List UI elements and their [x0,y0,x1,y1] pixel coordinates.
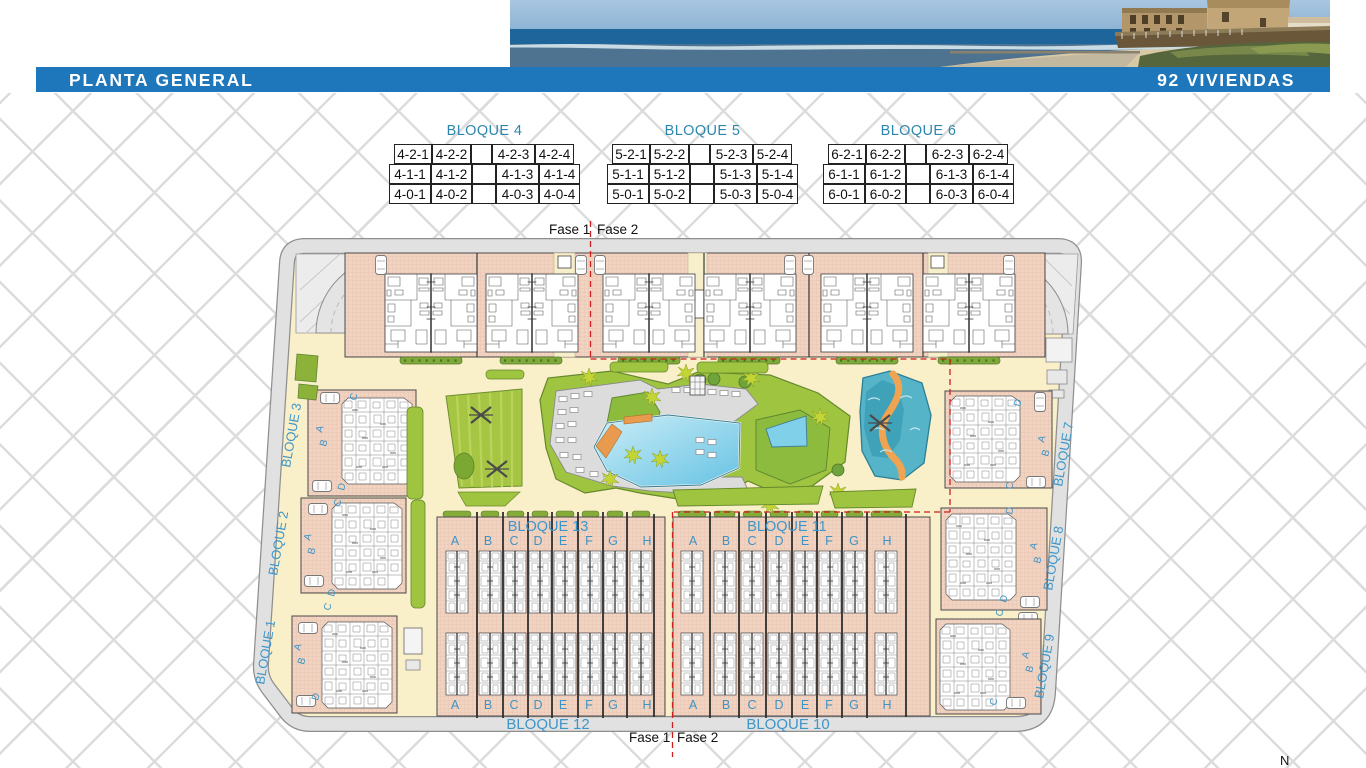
svg-text:BLOQUE 11: BLOQUE 11 [747,519,827,535]
svg-text:G: G [849,534,859,548]
svg-text:D: D [774,534,783,548]
svg-text:H: H [882,698,891,712]
svg-text:B: B [722,698,730,712]
svg-text:Fase 1: Fase 1 [549,222,590,237]
svg-text:Fase 2: Fase 2 [597,222,638,237]
svg-text:F: F [585,698,593,712]
svg-text:B: B [484,534,492,548]
svg-text:G: G [608,534,618,548]
svg-text:E: E [801,698,809,712]
svg-text:A: A [451,698,460,712]
svg-text:A: A [689,534,698,548]
svg-text:G: G [849,698,859,712]
svg-text:C: C [747,698,756,712]
svg-text:H: H [882,534,891,548]
svg-text:F: F [585,534,593,548]
svg-text:H: H [642,698,651,712]
svg-text:A: A [689,698,698,712]
svg-text:C: C [509,534,518,548]
svg-text:BLOQUE 10: BLOQUE 10 [746,716,829,733]
svg-text:N: N [1280,753,1289,768]
svg-text:Fase 1: Fase 1 [629,730,670,745]
svg-text:E: E [801,534,809,548]
svg-text:D: D [533,534,542,548]
svg-text:A: A [451,534,460,548]
svg-text:E: E [559,698,567,712]
svg-text:E: E [559,534,567,548]
svg-text:Fase 2: Fase 2 [677,730,718,745]
svg-text:C: C [747,534,756,548]
svg-text:D: D [533,698,542,712]
svg-text:C: C [509,698,518,712]
svg-text:F: F [825,534,833,548]
svg-text:H: H [642,534,651,548]
svg-text:D: D [774,698,783,712]
svg-text:BLOQUE 12: BLOQUE 12 [506,716,589,733]
svg-text:BLOQUE 13: BLOQUE 13 [508,519,589,535]
svg-text:F: F [825,698,833,712]
svg-text:G: G [608,698,618,712]
svg-text:B: B [484,698,492,712]
svg-text:B: B [722,534,730,548]
